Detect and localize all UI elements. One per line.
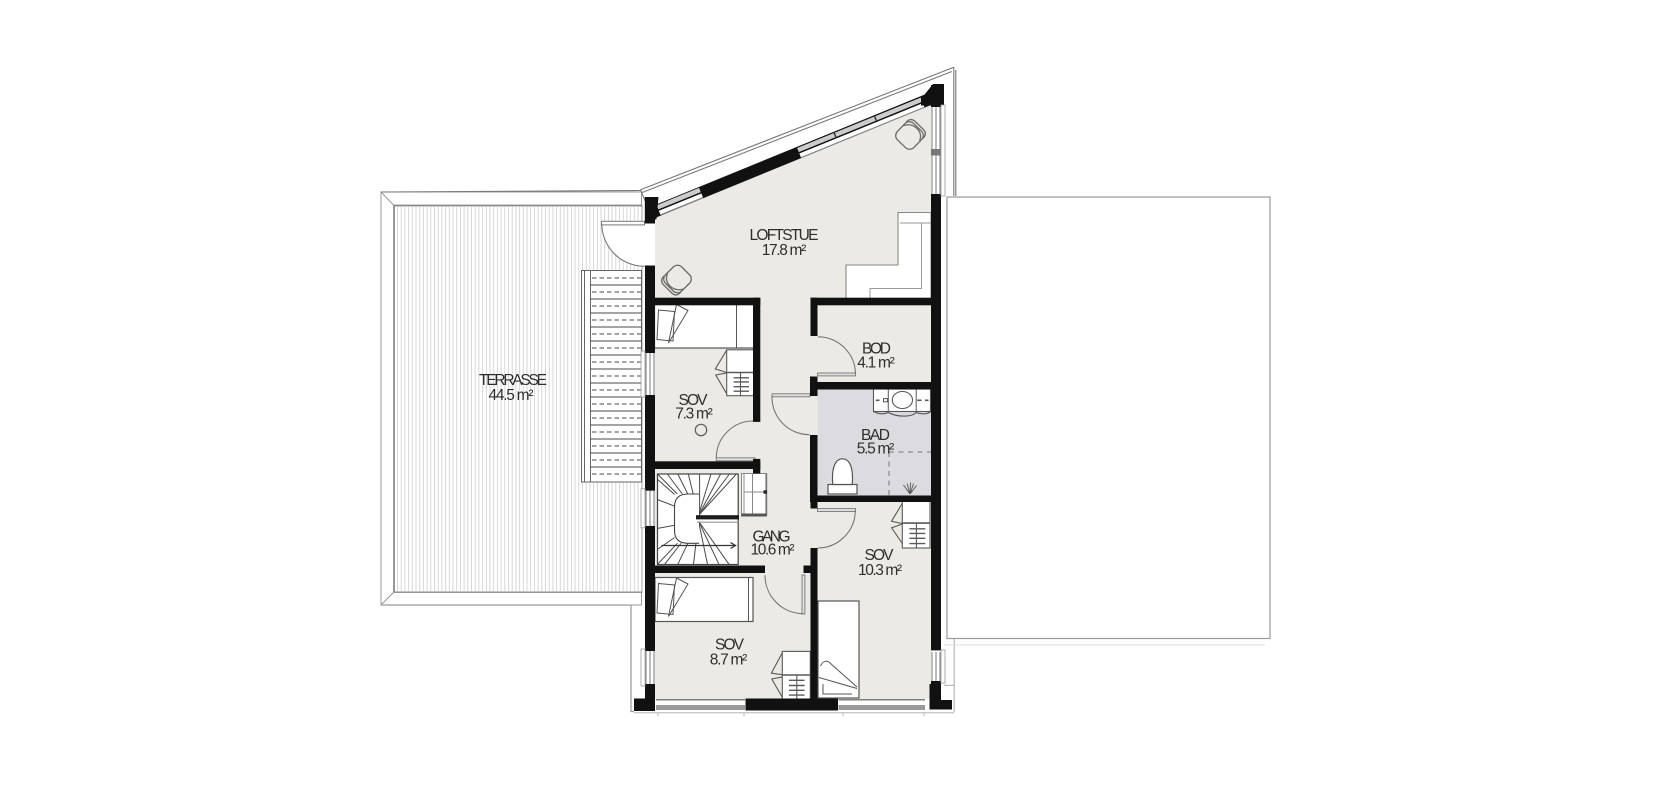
svg-text:44.5 m²: 44.5 m² — [489, 387, 534, 404]
svg-text:17.8 m²: 17.8 m² — [762, 242, 807, 259]
svg-text:4.1 m²: 4.1 m² — [857, 355, 895, 372]
svg-text:5.5 m²: 5.5 m² — [857, 441, 895, 458]
svg-text:10.6 m²: 10.6 m² — [751, 542, 795, 559]
svg-text:10.3 m²: 10.3 m² — [858, 562, 902, 579]
svg-text:7.3 m²: 7.3 m² — [675, 406, 713, 423]
svg-text:8.7 m²: 8.7 m² — [710, 652, 748, 669]
